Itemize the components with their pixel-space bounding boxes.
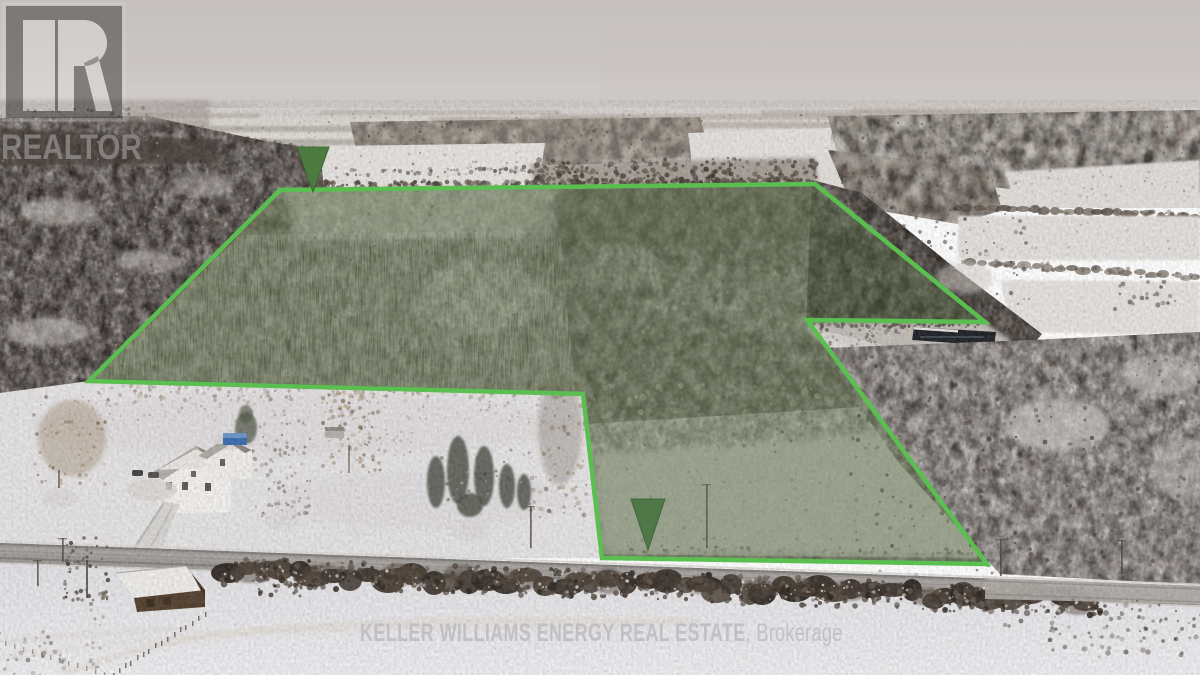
svg-text:®: ®: [140, 130, 149, 144]
svg-text:KELLER WILLIAMS ENERGY REAL ES: KELLER WILLIAMS ENERGY REAL ESTATE, Brok…: [360, 618, 843, 647]
svg-text:REALTOR: REALTOR: [1, 128, 142, 167]
